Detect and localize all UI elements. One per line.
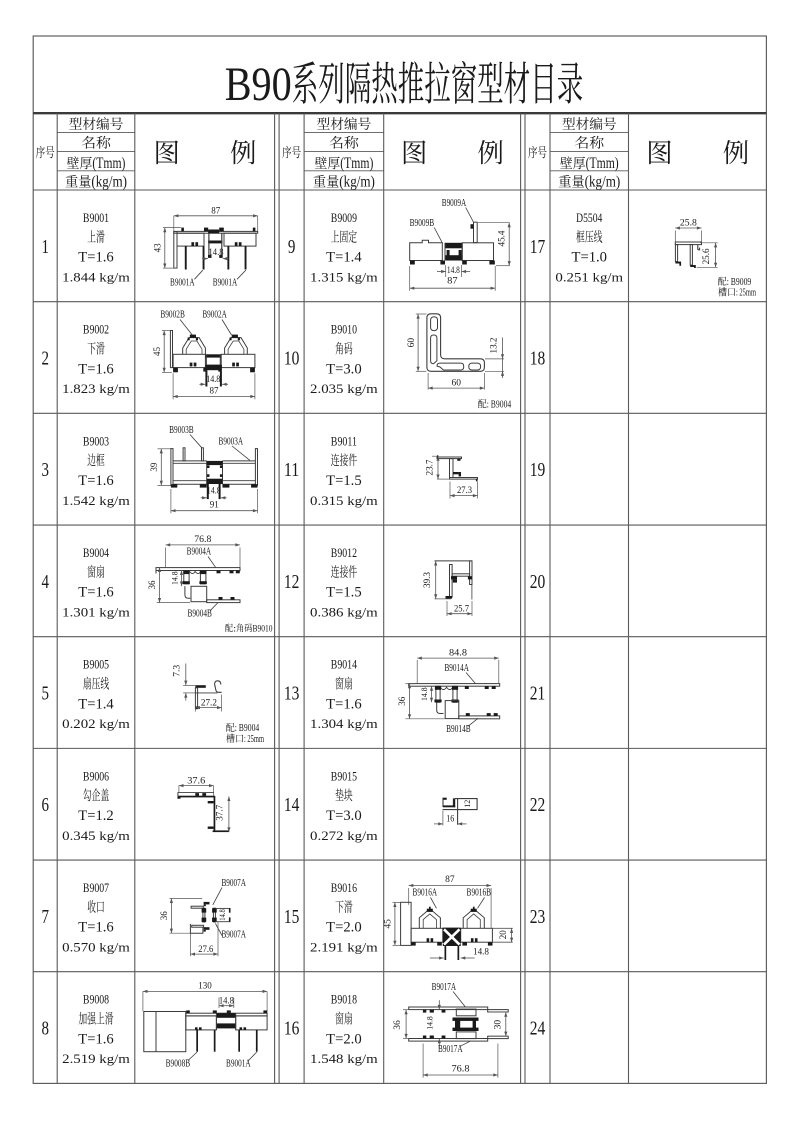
- svg-text:B9003: B9003: [83, 433, 109, 448]
- svg-text:D5504: D5504: [576, 210, 603, 225]
- svg-text:B9001A: B9001A: [213, 277, 238, 288]
- svg-text:0.386 kg/m: 0.386 kg/m: [310, 605, 378, 620]
- svg-text:2.519 kg/m: 2.519 kg/m: [62, 1051, 130, 1066]
- svg-text:14.8: 14.8: [447, 265, 460, 275]
- svg-text:: 25mm: : 25mm: [244, 734, 264, 745]
- svg-text:B9004B: B9004B: [187, 609, 212, 620]
- svg-text:36: 36: [159, 911, 169, 921]
- svg-text:B9007: B9007: [83, 880, 110, 895]
- svg-text:B9009B: B9009B: [410, 218, 435, 229]
- svg-text:0.345 kg/m: 0.345 kg/m: [62, 828, 130, 843]
- svg-text:14: 14: [284, 795, 300, 816]
- svg-text:23.7: 23.7: [425, 459, 435, 476]
- svg-text:B9017A: B9017A: [438, 1044, 463, 1055]
- svg-text:1.315 kg/m: 1.315 kg/m: [310, 270, 378, 285]
- svg-text:B90: B90: [225, 58, 292, 111]
- svg-text:60: 60: [406, 337, 416, 347]
- svg-text:22: 22: [530, 795, 546, 816]
- svg-text:1.823 kg/m: 1.823 kg/m: [62, 381, 130, 396]
- svg-text:18: 18: [530, 348, 546, 369]
- svg-text:1: 1: [41, 237, 49, 258]
- svg-text:14.8: 14.8: [217, 909, 227, 921]
- svg-text:23: 23: [530, 907, 546, 928]
- svg-text:45: 45: [383, 919, 393, 929]
- svg-text:(kg/m): (kg/m): [585, 174, 621, 191]
- svg-text:T=1.6: T=1.6: [78, 361, 114, 377]
- svg-text:14.8: 14.8: [424, 1016, 434, 1030]
- svg-text:45.4: 45.4: [496, 230, 506, 247]
- svg-text:B9009A: B9009A: [442, 198, 467, 209]
- svg-text:T=1.6: T=1.6: [78, 1031, 114, 1047]
- svg-text:16: 16: [284, 1019, 300, 1040]
- svg-text:T=1.5: T=1.5: [326, 473, 362, 489]
- svg-text:87: 87: [210, 386, 220, 396]
- svg-text:37.6: 37.6: [187, 775, 206, 785]
- svg-text:27.3: 27.3: [457, 485, 472, 495]
- svg-text::: :: [233, 623, 236, 633]
- svg-text:13: 13: [284, 684, 300, 705]
- svg-text:2.191 kg/m: 2.191 kg/m: [310, 940, 378, 955]
- svg-text:43: 43: [152, 243, 162, 253]
- svg-text:17: 17: [530, 237, 546, 258]
- svg-text:7: 7: [41, 907, 49, 928]
- svg-text:19: 19: [530, 460, 546, 481]
- svg-text:B9001A: B9001A: [226, 1059, 251, 1070]
- svg-text:87: 87: [211, 205, 221, 215]
- svg-text:87: 87: [445, 874, 455, 884]
- svg-text:B9009: B9009: [331, 210, 357, 225]
- svg-text:B9016: B9016: [331, 880, 358, 895]
- svg-text:B9002B: B9002B: [160, 309, 185, 320]
- svg-text:76.8: 76.8: [452, 1064, 471, 1074]
- svg-text:B9003A: B9003A: [219, 436, 244, 447]
- svg-text:T=1.5: T=1.5: [326, 585, 362, 601]
- svg-text:9: 9: [288, 237, 296, 258]
- svg-text:8: 8: [41, 1019, 49, 1040]
- svg-text:27.6: 27.6: [198, 944, 213, 954]
- svg-text:14.8: 14.8: [209, 247, 224, 257]
- svg-text:25.7: 25.7: [454, 604, 469, 614]
- svg-text:3: 3: [41, 460, 49, 481]
- svg-text:14.8: 14.8: [419, 687, 429, 701]
- svg-text:7.3: 7.3: [171, 664, 181, 677]
- svg-text:B9017A: B9017A: [432, 982, 457, 993]
- svg-text:B9015: B9015: [331, 768, 357, 783]
- svg-text:11: 11: [284, 460, 300, 481]
- svg-text:14.8: 14.8: [169, 571, 179, 585]
- svg-text:: 25mm: : 25mm: [736, 288, 756, 299]
- svg-text:(Tmm): (Tmm): [586, 155, 619, 172]
- svg-text:14.8: 14.8: [206, 374, 220, 384]
- svg-text:21: 21: [530, 684, 546, 705]
- svg-text:2: 2: [41, 348, 49, 369]
- svg-text:B9004: B9004: [83, 545, 110, 560]
- svg-text:T=1.0: T=1.0: [572, 250, 608, 266]
- svg-text:37.7: 37.7: [215, 804, 225, 821]
- svg-text:45: 45: [152, 346, 162, 356]
- svg-text:B9005: B9005: [83, 657, 109, 672]
- svg-text:1.301 kg/m: 1.301 kg/m: [62, 605, 130, 620]
- svg-text:T=1.2: T=1.2: [78, 808, 114, 824]
- svg-text:16: 16: [446, 813, 454, 823]
- svg-text:0.272 kg/m: 0.272 kg/m: [310, 828, 378, 843]
- svg-text:1.542 kg/m: 1.542 kg/m: [62, 493, 130, 508]
- svg-text:4: 4: [41, 572, 49, 593]
- svg-text:12: 12: [463, 800, 472, 808]
- svg-text:T=2.0: T=2.0: [326, 920, 362, 936]
- svg-text:: B9004: : B9004: [235, 723, 260, 734]
- svg-text:14.8: 14.8: [207, 486, 221, 496]
- svg-text:B9001: B9001: [83, 210, 109, 225]
- svg-text:B9014A: B9014A: [444, 663, 469, 674]
- svg-text:25.6: 25.6: [701, 248, 711, 265]
- svg-text:24: 24: [530, 1019, 546, 1040]
- svg-text:B9008: B9008: [83, 992, 109, 1007]
- svg-text:B9003B: B9003B: [169, 425, 194, 436]
- svg-text:27.2: 27.2: [201, 697, 217, 707]
- svg-text:0.251 kg/m: 0.251 kg/m: [555, 270, 623, 285]
- svg-text:B9016B: B9016B: [467, 888, 492, 899]
- svg-text:0.202 kg/m: 0.202 kg/m: [62, 716, 130, 731]
- svg-text:T=2.0: T=2.0: [326, 1031, 362, 1047]
- svg-text:(kg/m): (kg/m): [91, 174, 127, 191]
- svg-text:B9018: B9018: [331, 992, 357, 1007]
- svg-text:T=3.0: T=3.0: [326, 361, 362, 377]
- svg-text:B9014B: B9014B: [446, 724, 471, 735]
- svg-text:10: 10: [284, 348, 300, 369]
- svg-text:B9010: B9010: [331, 322, 357, 337]
- svg-text:30: 30: [493, 1019, 503, 1029]
- svg-text:B9002A: B9002A: [202, 309, 227, 320]
- svg-text:87: 87: [447, 276, 458, 286]
- svg-text:39: 39: [149, 462, 159, 472]
- svg-text:B9014: B9014: [331, 657, 358, 672]
- svg-text:36: 36: [392, 1020, 402, 1030]
- svg-text:T=1.6: T=1.6: [326, 696, 362, 712]
- svg-text:B9008B: B9008B: [166, 1059, 191, 1070]
- svg-text:20: 20: [530, 572, 546, 593]
- svg-text:B9002: B9002: [83, 322, 109, 337]
- svg-text:(Tmm): (Tmm): [340, 155, 373, 172]
- svg-text:91: 91: [210, 499, 219, 509]
- svg-text:B9001A: B9001A: [170, 277, 195, 288]
- svg-text:20: 20: [498, 930, 508, 940]
- svg-text:: B9004: : B9004: [487, 399, 512, 410]
- svg-text:(kg/m): (kg/m): [339, 174, 375, 191]
- svg-text:T=1.4: T=1.4: [326, 250, 362, 266]
- svg-text:2.035 kg/m: 2.035 kg/m: [310, 381, 378, 396]
- svg-text:14.8: 14.8: [219, 995, 234, 1005]
- svg-text:B9012: B9012: [331, 545, 357, 560]
- svg-text:5: 5: [41, 684, 49, 705]
- svg-text:: B9009: : B9009: [727, 277, 752, 288]
- svg-text:T=1.6: T=1.6: [78, 585, 114, 601]
- svg-text:15: 15: [284, 907, 300, 928]
- svg-text:12: 12: [284, 572, 300, 593]
- svg-text:6: 6: [41, 795, 49, 816]
- svg-text:13.2: 13.2: [489, 338, 499, 354]
- svg-text:14.8: 14.8: [473, 946, 490, 956]
- svg-text:1.844 kg/m: 1.844 kg/m: [62, 270, 130, 285]
- svg-text:60: 60: [452, 377, 462, 387]
- svg-text:39.3: 39.3: [422, 571, 432, 588]
- svg-text:T=1.6: T=1.6: [78, 473, 114, 489]
- svg-text:B9004A: B9004A: [187, 547, 212, 558]
- svg-text:36: 36: [147, 580, 157, 590]
- svg-text:B9006: B9006: [83, 768, 110, 783]
- svg-text:B9011: B9011: [331, 433, 357, 448]
- svg-text:B9007A: B9007A: [221, 878, 246, 889]
- svg-text:B9007A: B9007A: [221, 930, 246, 941]
- svg-text:25.8: 25.8: [680, 217, 698, 227]
- svg-text:T=1.4: T=1.4: [78, 696, 114, 712]
- svg-text:36: 36: [397, 696, 407, 706]
- svg-text:76.8: 76.8: [194, 534, 212, 544]
- svg-text:1.548 kg/m: 1.548 kg/m: [310, 1051, 378, 1066]
- svg-text:T=1.6: T=1.6: [78, 920, 114, 936]
- svg-text:130: 130: [198, 981, 212, 991]
- svg-text:B9010: B9010: [253, 624, 273, 634]
- svg-text:T=1.6: T=1.6: [78, 250, 114, 266]
- svg-text:B9016A: B9016A: [413, 888, 438, 899]
- svg-text:84.8: 84.8: [449, 647, 468, 657]
- svg-text:(Tmm): (Tmm): [92, 155, 125, 172]
- svg-text:0.315 kg/m: 0.315 kg/m: [310, 493, 378, 508]
- svg-text:1.304 kg/m: 1.304 kg/m: [310, 716, 378, 731]
- svg-text:0.570 kg/m: 0.570 kg/m: [62, 940, 130, 955]
- svg-text:T=3.0: T=3.0: [326, 808, 362, 824]
